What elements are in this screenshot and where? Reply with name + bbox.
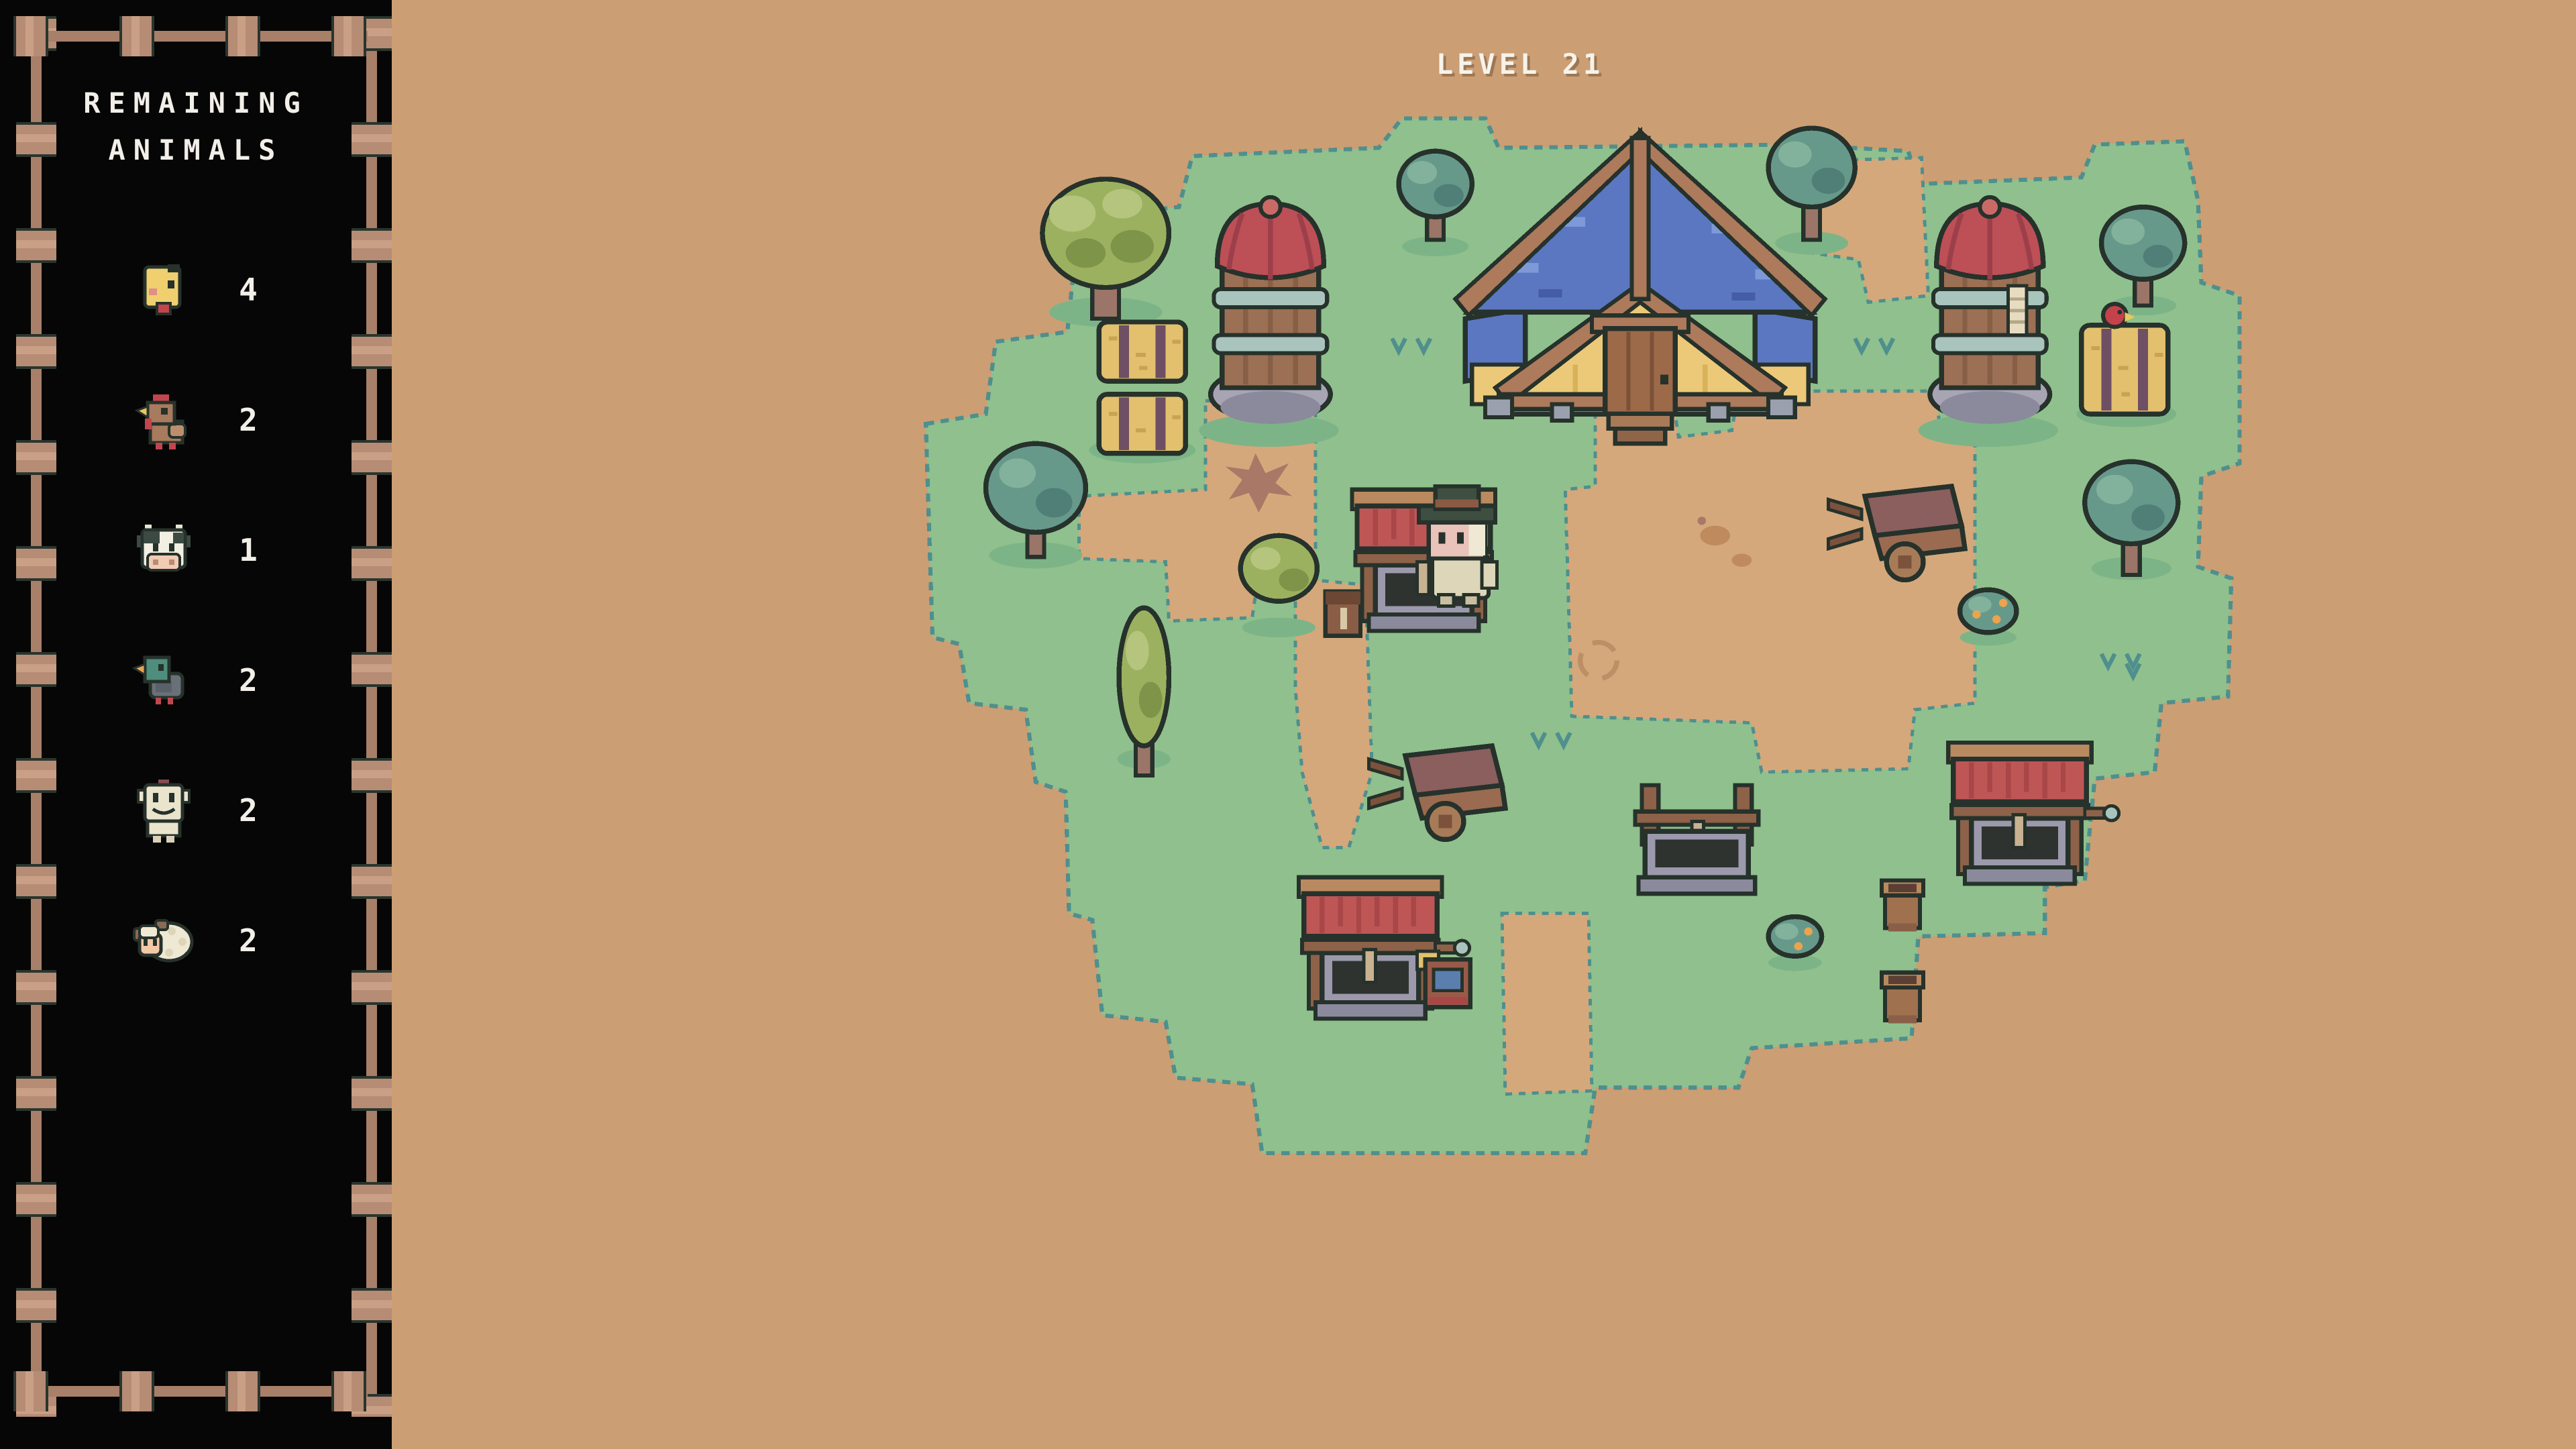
hay-bale (2082, 325, 2168, 414)
well-crank (2085, 806, 2119, 820)
pot-prop (1882, 881, 1923, 932)
dirt-spot (1732, 553, 1752, 567)
dirt-spot (1700, 526, 1730, 545)
panel-title-line1: REMAINING (0, 80, 392, 127)
sheep-icon (131, 910, 196, 974)
animal-count: 2 (231, 794, 266, 829)
fence-border-top (13, 16, 378, 56)
duck-icon (131, 649, 196, 714)
silo-right[interactable] (1930, 197, 2050, 424)
fence-border-right (352, 16, 392, 1417)
game-root: LEVEL 21 REMAINING ANIMALS 4 (0, 0, 2576, 1449)
silo-ladder (2008, 286, 2027, 335)
crate-prop (1417, 951, 1470, 1007)
well-crank (1436, 941, 1470, 955)
berry-bush (1768, 917, 1821, 957)
remaining-animals-panel: REMAINING ANIMALS 4 (0, 0, 392, 1449)
animal-row-duck[interactable]: 2 (131, 639, 266, 724)
silo-left[interactable] (1211, 197, 1331, 424)
pot-prop (1882, 973, 1923, 1024)
level-indicator: LEVEL 21 (1386, 48, 1654, 80)
animal-row-chicken[interactable]: 2 (131, 378, 266, 464)
animal-count: 2 (231, 664, 266, 699)
animal-row-goat[interactable]: 2 (131, 769, 266, 855)
barn-door (1605, 329, 1675, 414)
panel-title: REMAINING ANIMALS (0, 80, 392, 174)
farmer-character[interactable] (1419, 486, 1497, 606)
animal-count: 2 (231, 924, 266, 959)
animal-count: 1 (231, 534, 266, 569)
hay-bale (1099, 322, 1185, 381)
goat-icon (131, 780, 196, 844)
cow-icon (131, 519, 196, 584)
animal-count: 4 (231, 274, 266, 309)
tree-olive-small (1240, 535, 1317, 601)
hay-bale (1099, 394, 1185, 453)
animal-row-cow[interactable]: 1 (131, 508, 266, 594)
panel-title-line2: ANIMALS (0, 127, 392, 174)
satchel-prop (1326, 592, 1360, 636)
dirt-spot (1698, 517, 1706, 525)
animal-row-chick[interactable]: 4 (131, 248, 266, 334)
chicken-icon (131, 389, 196, 453)
fence-border-bottom (13, 1371, 378, 1411)
chick-icon (131, 259, 196, 323)
berry-bush (1960, 590, 2017, 633)
animal-row-sheep[interactable]: 2 (131, 899, 266, 985)
animal-count: 2 (231, 404, 266, 439)
fence-border-left (16, 16, 56, 1417)
